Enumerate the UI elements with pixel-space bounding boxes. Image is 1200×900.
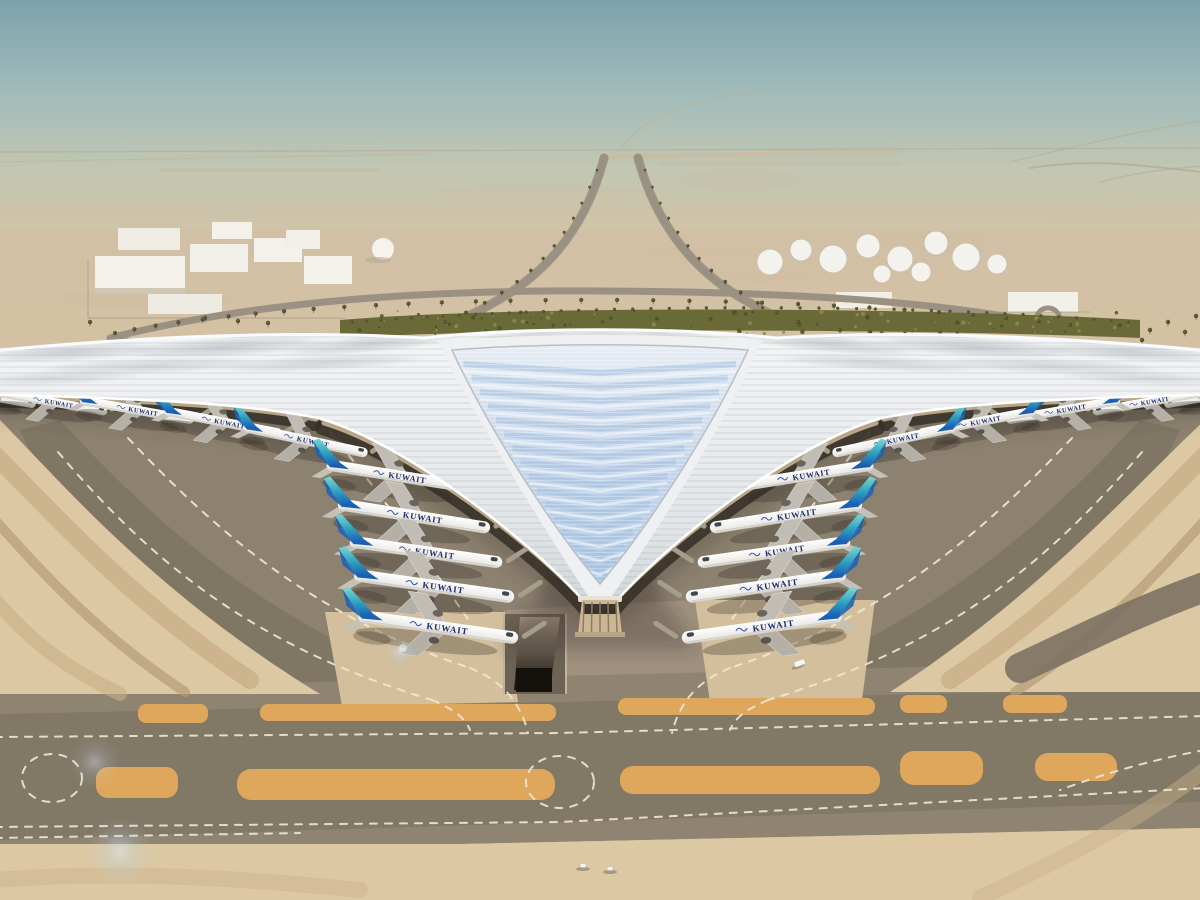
- shrub: [519, 310, 523, 314]
- shrub: [471, 315, 475, 319]
- shoulder-pad: [1003, 695, 1067, 713]
- shrub: [1037, 312, 1039, 314]
- shrub: [751, 311, 754, 314]
- shrub: [563, 324, 566, 327]
- shrub: [481, 317, 484, 320]
- shrub: [961, 320, 966, 325]
- shrub: [512, 319, 516, 323]
- shrub: [935, 322, 937, 324]
- shoulder-pad: [237, 769, 555, 800]
- shrub: [947, 323, 949, 325]
- shrub: [448, 323, 451, 326]
- building: [212, 222, 252, 239]
- flare-dot: [399, 644, 407, 652]
- building: [118, 228, 180, 250]
- shrub: [652, 322, 656, 326]
- shrub: [521, 319, 525, 323]
- distant-taxiway-strip: [660, 162, 900, 166]
- shrub: [782, 331, 785, 334]
- shrub: [525, 321, 528, 324]
- shoulder-pad: [1035, 753, 1117, 781]
- shrub: [380, 314, 384, 318]
- shrub: [435, 329, 438, 332]
- shrub: [854, 325, 857, 328]
- shrub: [1064, 331, 1066, 333]
- shrub: [609, 316, 613, 320]
- shrub: [655, 317, 659, 321]
- shrub: [816, 323, 819, 326]
- shrub: [968, 322, 970, 324]
- shrub: [397, 310, 399, 312]
- shrub: [498, 326, 502, 330]
- fuel-tank: [952, 243, 980, 271]
- shrub: [1000, 324, 1003, 327]
- shoulder-pad: [618, 698, 875, 715]
- shoulder-pad: [138, 704, 208, 723]
- shrub: [1113, 326, 1117, 330]
- shrub: [1015, 321, 1019, 325]
- entrance-pavilion: [575, 596, 625, 637]
- shrub: [493, 323, 497, 327]
- sand-blotch: [1040, 207, 1197, 223]
- shrub: [1050, 318, 1052, 320]
- fuel-tank: [757, 249, 783, 275]
- building-face: [95, 288, 185, 294]
- flare-glow: [386, 638, 414, 666]
- fuel-tank: [856, 234, 880, 258]
- fuel-tank: [790, 239, 812, 261]
- shrub: [993, 327, 995, 329]
- shrub: [541, 318, 543, 320]
- shrub: [955, 320, 960, 325]
- shrub: [485, 329, 488, 332]
- fuel-tank: [911, 262, 931, 282]
- shrub: [434, 333, 436, 335]
- shoulder-pad: [900, 751, 983, 785]
- sand-blotch: [420, 255, 538, 266]
- shrub: [865, 315, 870, 320]
- scene-canvas: KUWAITKUWAITKUWAITKUWAITKUWAITKUWAITKUWA…: [0, 0, 1200, 900]
- shrub: [437, 317, 439, 319]
- airport-aerial-rendering: KUWAITKUWAITKUWAITKUWAITKUWAITKUWAITKUWA…: [0, 0, 1200, 900]
- shoulder-pad: [260, 704, 556, 721]
- building: [190, 244, 248, 272]
- shrub: [879, 312, 883, 316]
- shrub: [886, 319, 890, 323]
- fuel-tank: [887, 246, 913, 272]
- shrub: [530, 317, 532, 319]
- building: [286, 230, 320, 249]
- building: [148, 294, 222, 314]
- building: [95, 256, 185, 292]
- shrub: [732, 310, 737, 315]
- shrub: [532, 322, 535, 325]
- shrub: [800, 330, 805, 335]
- shrub: [383, 320, 385, 322]
- shrub: [763, 332, 766, 335]
- pavilion-steps: [575, 632, 625, 637]
- distant-strip-left: [160, 168, 380, 172]
- shrub: [1078, 329, 1081, 332]
- flare-glow: [69, 736, 121, 788]
- shrub: [748, 321, 752, 325]
- shrub: [378, 326, 380, 328]
- flare-glow: [86, 818, 154, 886]
- shrub: [1076, 325, 1078, 327]
- shrub: [593, 313, 595, 315]
- shrub: [1034, 332, 1036, 334]
- shrub: [690, 326, 692, 328]
- shrub: [423, 316, 425, 318]
- dome-shadow: [365, 257, 391, 263]
- sand-blotch: [678, 169, 803, 191]
- fuel-tank: [987, 254, 1007, 274]
- shrub: [1127, 325, 1129, 327]
- shrub: [546, 316, 550, 320]
- sand-blotch: [441, 185, 644, 198]
- shrub: [737, 329, 742, 334]
- shrub: [989, 322, 992, 325]
- fuel-tank: [924, 231, 948, 255]
- shrub: [1115, 311, 1118, 314]
- building: [304, 256, 352, 284]
- fuel-tank: [819, 245, 847, 273]
- shrub: [550, 311, 554, 315]
- shrub: [570, 324, 572, 326]
- shrub: [914, 328, 917, 331]
- shrub: [417, 313, 420, 316]
- shrub: [601, 320, 604, 323]
- shrub: [551, 324, 554, 327]
- shrub: [435, 325, 438, 328]
- shrub: [1075, 322, 1079, 326]
- dome-building: [372, 238, 394, 260]
- shrub: [1047, 320, 1050, 323]
- shrub: [454, 324, 458, 328]
- shrub: [861, 312, 865, 316]
- shrub: [1032, 325, 1035, 328]
- shrub: [744, 312, 748, 316]
- shrub: [1050, 330, 1052, 332]
- shoulder-pad: [900, 695, 947, 713]
- shrub: [819, 309, 824, 314]
- tunnel-opening: [516, 668, 552, 692]
- shrub: [1118, 323, 1122, 327]
- fuel-tank: [873, 265, 891, 283]
- shrub: [855, 313, 859, 317]
- shrub: [709, 317, 713, 321]
- shrub: [357, 328, 361, 332]
- shoulder-pad: [620, 766, 880, 794]
- shrub: [956, 331, 959, 334]
